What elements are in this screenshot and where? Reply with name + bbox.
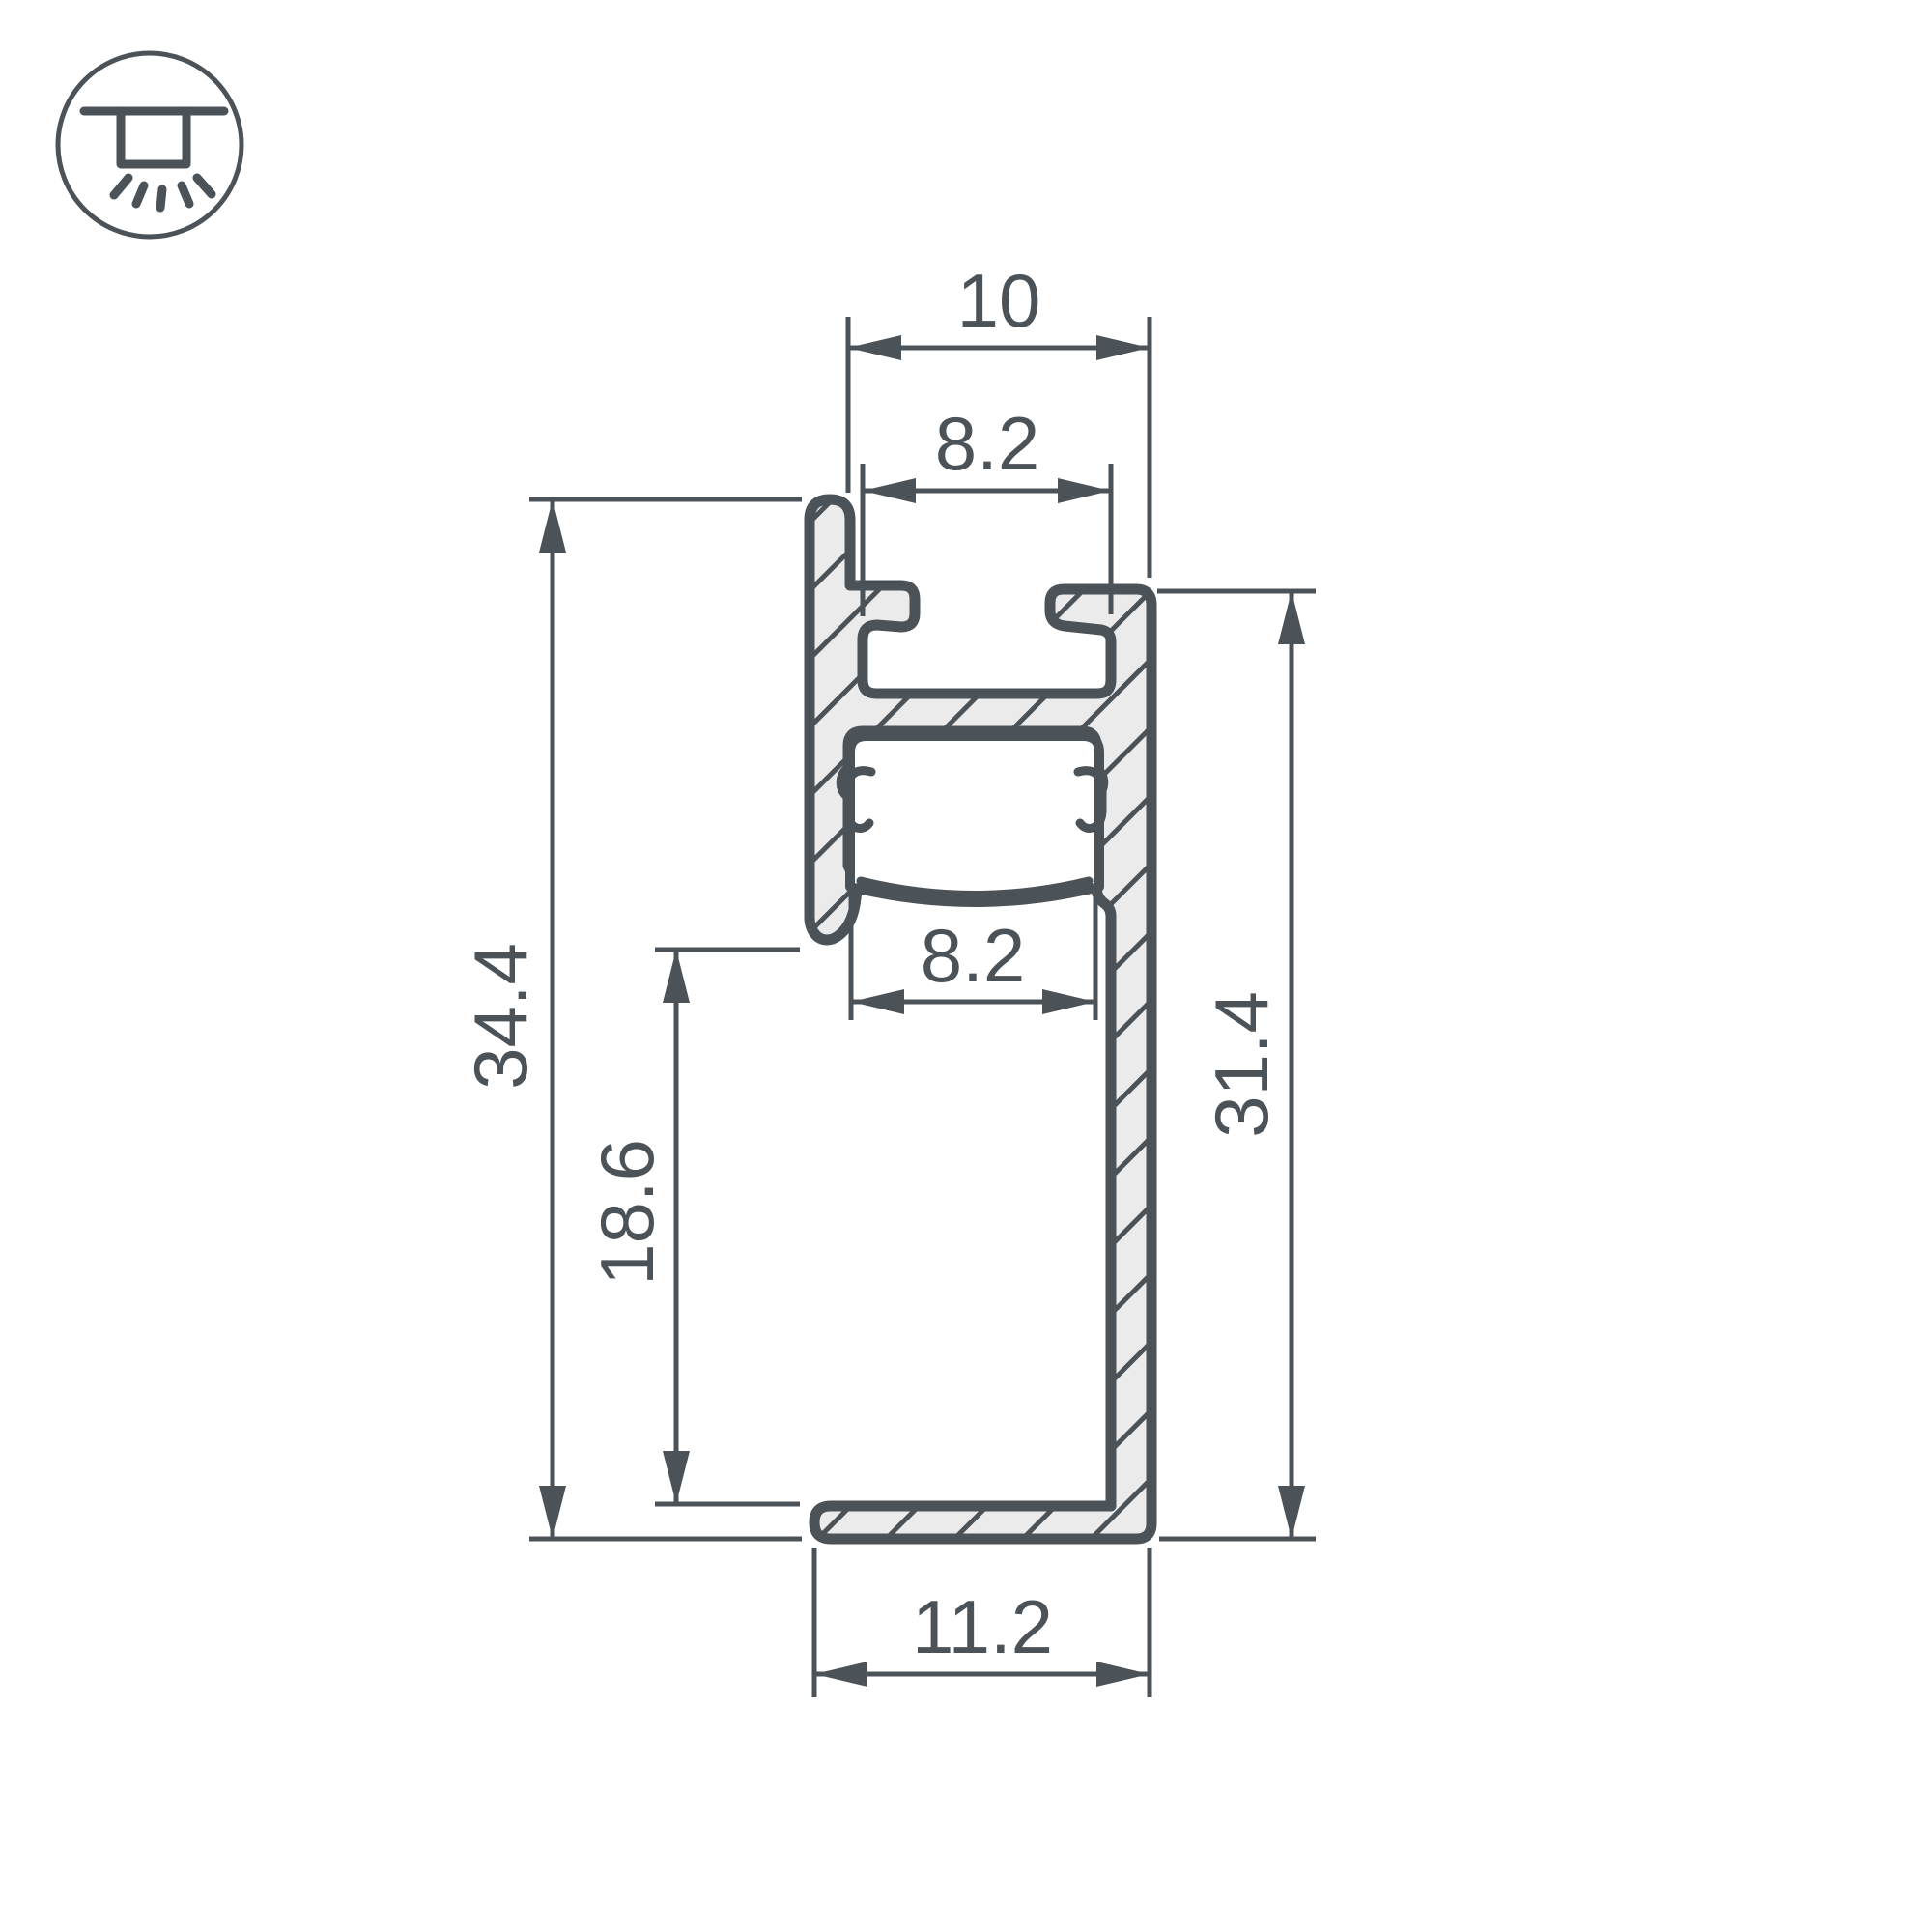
diffuser-body bbox=[850, 736, 1099, 902]
profile-body bbox=[810, 499, 1151, 1539]
ceiling-recessed-light-icon bbox=[58, 53, 241, 237]
diffuser bbox=[847, 736, 1102, 902]
icon-light-rays bbox=[114, 178, 212, 208]
dimension-label-bottom-flange-width: 11.2 bbox=[912, 1584, 1053, 1669]
dimension-overall-height: 34.4 bbox=[458, 499, 802, 1539]
dimension-label-top-outer-width: 10 bbox=[957, 258, 1041, 343]
dimension-label-overall-height: 34.4 bbox=[458, 943, 543, 1090]
dimension-bottom-flange-width: 11.2 bbox=[814, 1548, 1150, 1697]
dimension-right-side-height: 31.4 bbox=[1157, 591, 1316, 1539]
dimension-lower-left-height: 18.6 bbox=[584, 950, 800, 1504]
dimension-label-lower-left-height: 18.6 bbox=[584, 1139, 669, 1286]
icon-circle bbox=[58, 53, 241, 237]
drawing-page: 10 8.2 8.2 34.4 bbox=[0, 0, 1932, 1932]
profile-technical-drawing: 10 8.2 8.2 34.4 bbox=[0, 0, 1932, 1932]
dimension-label-right-side-height: 31.4 bbox=[1199, 991, 1284, 1138]
dimension-label-diffuser-channel-width: 8.2 bbox=[921, 913, 1025, 998]
icon-fixture-box bbox=[121, 111, 186, 164]
dimension-label-top-slot-width: 8.2 bbox=[935, 401, 1039, 486]
